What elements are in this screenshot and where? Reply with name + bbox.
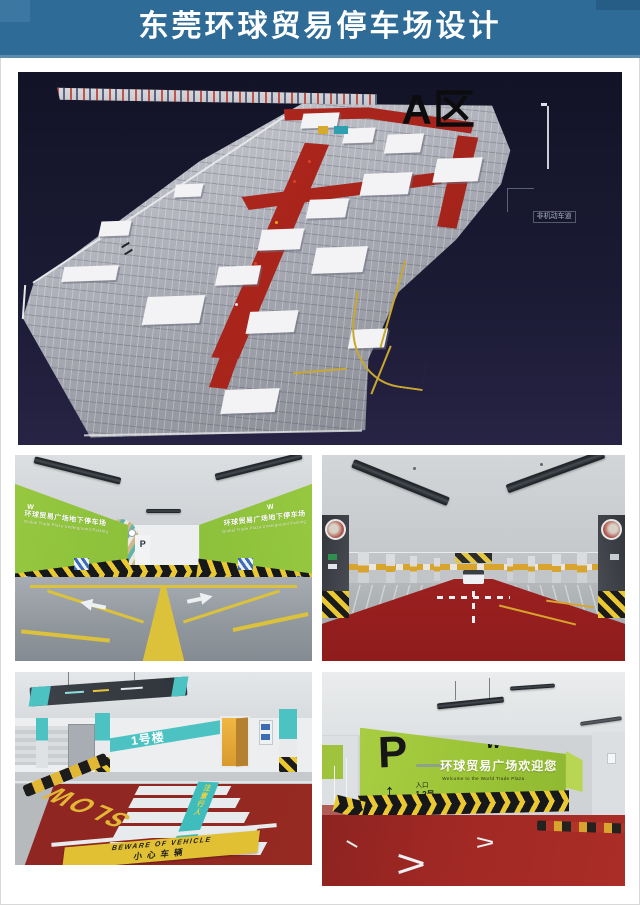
far-ramp-hazard (455, 553, 491, 563)
sign-teal-cap (28, 686, 50, 707)
poster-page: 东莞环球贸易停车场设计 (0, 0, 640, 905)
map-building (306, 198, 350, 218)
map-building (245, 310, 298, 334)
column-mid (410, 556, 417, 583)
welcome-slogan-en: Welcome to the World Trade Plaza (442, 776, 524, 781)
teal-kiosk (334, 126, 347, 134)
p-sign-label: P (140, 539, 146, 549)
photo-welcome-wall: P ↑ 入口 1.2号 W 环球贸易广场欢迎您 Welcome to the W… (322, 672, 625, 886)
column-mid (577, 552, 588, 587)
non-motor-lane-label: 非机动车道 (533, 211, 576, 223)
figure-dot (308, 160, 311, 163)
figure-dot (293, 180, 296, 183)
yellow-kiosk (318, 126, 329, 133)
column-mid (507, 558, 513, 581)
lamp-post (547, 106, 549, 169)
corner-guard-far-left (74, 558, 89, 570)
column-mid (552, 554, 561, 585)
crossing-dash-row (437, 596, 510, 599)
column-mid (358, 552, 369, 587)
door-leaf (236, 718, 248, 767)
figure-dot (275, 221, 278, 224)
page-title: 东莞环球贸易停车场设计 (0, 12, 640, 42)
title-bar: 东莞环球贸易停车场设计 (0, 0, 640, 58)
sign-text-dash (64, 691, 83, 694)
sign-teal-cap (171, 676, 189, 697)
wall-side-face (566, 751, 583, 792)
open-door (220, 716, 250, 768)
light-rod (455, 681, 456, 700)
lane-label-leader (507, 188, 534, 212)
convex-mirror-left (325, 519, 346, 540)
wrapped-column (36, 718, 48, 768)
map-building (360, 172, 413, 196)
wall-logo-right: W (266, 504, 273, 512)
wall-base-chevrons (358, 790, 569, 817)
corner-guard-far-right (238, 558, 253, 570)
distant-car (463, 570, 484, 583)
photo-entrance-ramp: P W 环球贸易广场地下停车场 Global Trade Plaza Under… (15, 455, 312, 661)
column-mid (386, 554, 395, 585)
map-building (215, 265, 262, 285)
column-sign (328, 564, 337, 569)
floorplan-panel: A区 非机动车道 (18, 72, 622, 445)
left-green-hint (322, 745, 343, 779)
column-mid (528, 556, 535, 583)
entrance-note-line1: 入口 (416, 782, 435, 790)
lamp-head (541, 103, 547, 106)
welcome-p-sign: P (378, 731, 409, 776)
map-building (257, 228, 304, 250)
column-hazard-right (598, 591, 625, 618)
welcome-slogan-cn: 环球贸易广场欢迎您 (440, 757, 557, 774)
map-building (432, 157, 483, 183)
header-corner-right (596, 0, 640, 10)
map-building (174, 183, 204, 197)
figure-dot (254, 262, 257, 265)
area-a-label: A区 (402, 89, 476, 131)
zebra-stripe (128, 798, 240, 808)
right-wall-sign (607, 753, 616, 764)
map-building (142, 295, 206, 325)
center-dash (472, 616, 475, 623)
small-wall-sign (259, 720, 274, 745)
photo-red-aisle (322, 455, 625, 661)
column-sign (610, 554, 619, 560)
column-sign (328, 554, 337, 560)
column-mid (434, 558, 440, 581)
ceiling-light (146, 509, 182, 513)
map-building (311, 246, 368, 274)
map-building (221, 388, 281, 414)
sign-blue-block (261, 724, 270, 730)
light-rod (489, 678, 490, 699)
far-parking-wing (57, 85, 377, 104)
map-building (384, 133, 425, 153)
w-logo: W (484, 735, 502, 753)
photo-crosswalk: 1号楼 注意行人 SLOW BEWARE OF VEHICLE 小心车辆 (15, 672, 312, 865)
map-building (61, 265, 119, 282)
convex-mirror-right (601, 519, 622, 540)
center-dash (472, 603, 475, 609)
sign-text-dash (93, 689, 109, 692)
column-hazard-left (322, 591, 349, 618)
map-building (98, 221, 132, 237)
sign-blue-block (261, 734, 270, 740)
sign-text-dash (121, 687, 143, 691)
